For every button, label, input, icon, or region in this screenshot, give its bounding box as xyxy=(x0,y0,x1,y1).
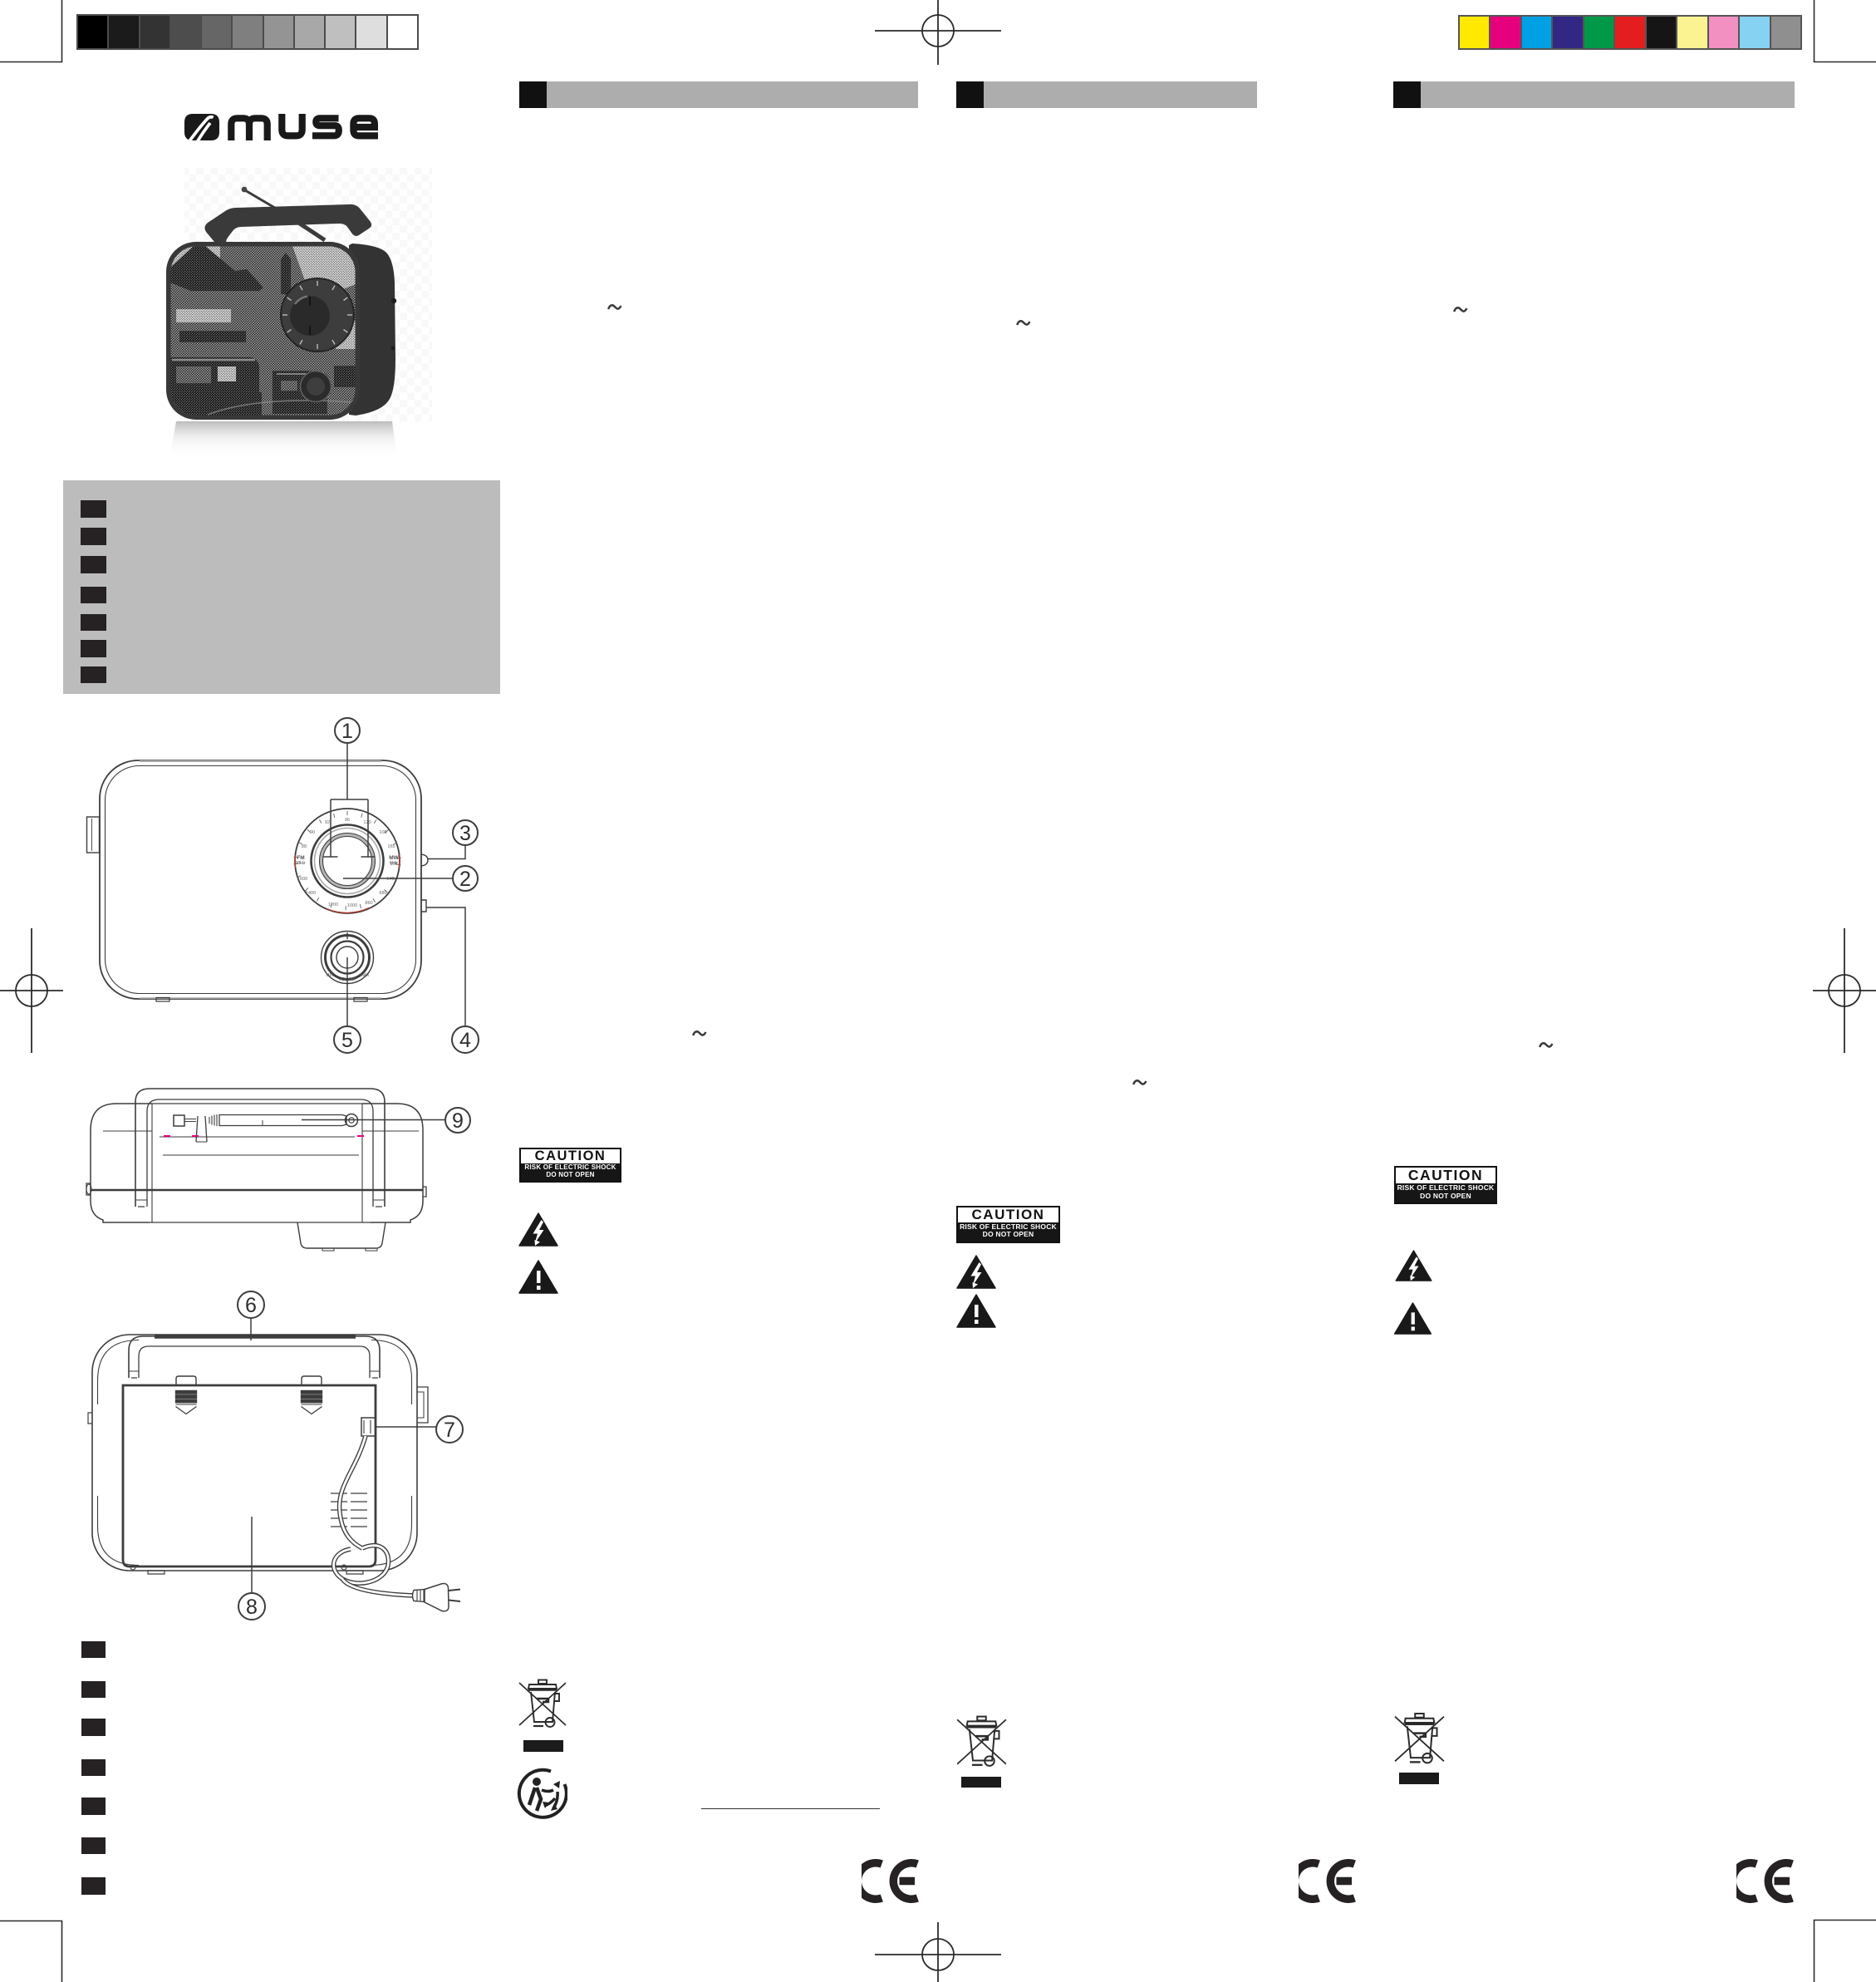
svg-text:1600: 1600 xyxy=(297,877,307,882)
svg-text:MAX: MAX xyxy=(361,973,371,978)
svg-text:5: 5 xyxy=(341,1029,353,1052)
svg-text:165: 165 xyxy=(387,844,395,849)
svg-text:MW: MW xyxy=(389,855,399,861)
svg-text:9: 9 xyxy=(452,1109,464,1133)
svg-text:860: 860 xyxy=(365,901,372,906)
svg-text:4: 4 xyxy=(459,1029,471,1052)
svg-text:1: 1 xyxy=(341,720,353,743)
svg-text:3: 3 xyxy=(459,822,471,845)
svg-text:kHz: kHz xyxy=(390,861,398,866)
svg-text:MHz: MHz xyxy=(296,861,306,866)
svg-text:120: 120 xyxy=(363,820,371,825)
svg-text:92: 92 xyxy=(325,820,330,825)
svg-text:680: 680 xyxy=(379,891,386,896)
svg-text:FM: FM xyxy=(297,855,304,861)
svg-text:1000: 1000 xyxy=(347,903,357,908)
svg-text:96: 96 xyxy=(345,818,350,823)
svg-text:MIN: MIN xyxy=(326,973,334,978)
svg-text:108: 108 xyxy=(379,830,386,835)
svg-text:90: 90 xyxy=(310,830,315,835)
svg-text:1200: 1200 xyxy=(328,902,338,907)
svg-text:88: 88 xyxy=(302,844,307,849)
svg-text:8: 8 xyxy=(246,1596,258,1619)
svg-text:6: 6 xyxy=(245,1294,257,1317)
svg-text:7: 7 xyxy=(444,1419,455,1442)
svg-text:540: 540 xyxy=(386,877,394,882)
svg-text:2: 2 xyxy=(459,868,471,891)
svg-text:1400: 1400 xyxy=(306,891,316,896)
